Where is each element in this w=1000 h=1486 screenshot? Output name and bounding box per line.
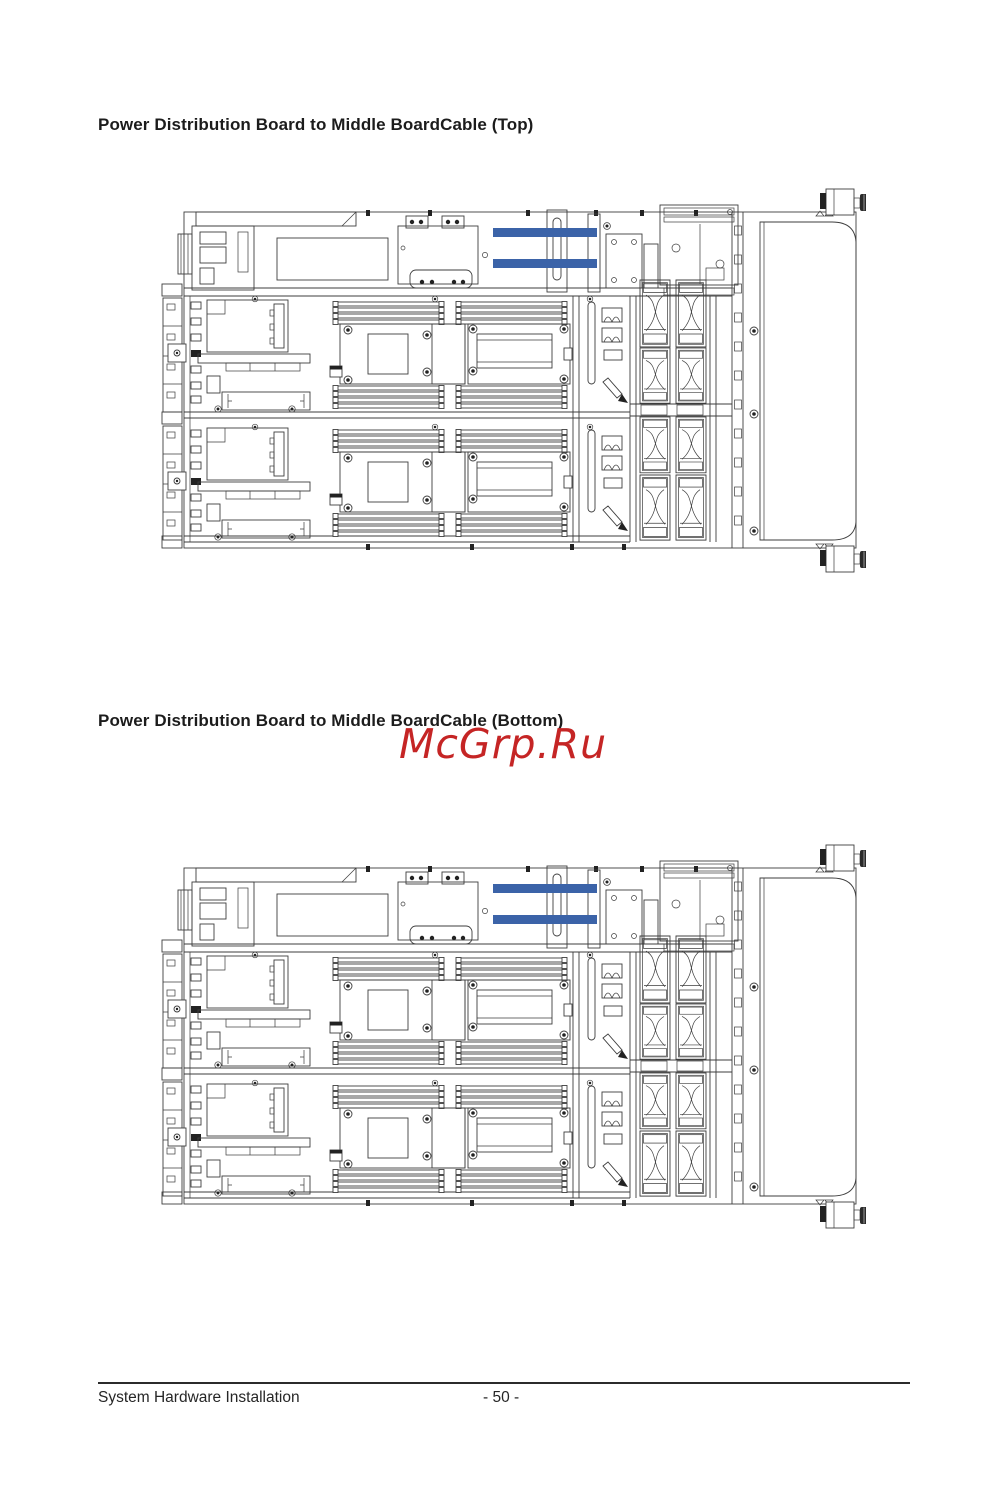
- watermark: McGrp.Ru: [399, 720, 607, 768]
- server-chassis-top-view: [150, 186, 866, 582]
- footer-divider: [98, 1382, 910, 1384]
- footer-document-title: System Hardware Installation: [98, 1389, 300, 1407]
- server-chassis-top-view: [150, 842, 866, 1238]
- section-title-top: Power Distribution Board to Middle Board…: [98, 115, 533, 135]
- footer-page-number: - 50 -: [483, 1389, 519, 1407]
- diagram-pdb-cable-top: [150, 186, 866, 582]
- diagram-pdb-cable-bottom: [150, 842, 866, 1238]
